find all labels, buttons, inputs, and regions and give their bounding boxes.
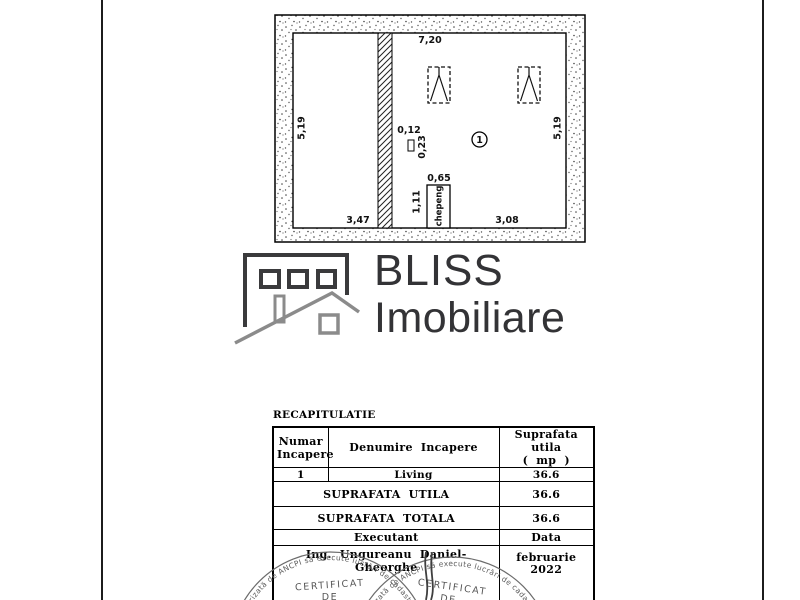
- scanned-document-page: 1 7,20 5,19 5,19 3,47 3,08 0,12 0,23 0,6…: [0, 0, 800, 600]
- cell-room-area: 36.6: [499, 468, 594, 482]
- dimension-left: 5,19: [297, 116, 308, 139]
- hatch-opening-label: chepeng: [435, 186, 445, 227]
- hatched-partition-wall: [378, 33, 392, 228]
- dimension-niche-depth: 0,23: [417, 135, 428, 158]
- floor-plan-drawing: 1 7,20 5,19 5,19 3,47 3,08 0,12 0,23 0,6…: [270, 10, 590, 246]
- cell-suprafata-totala-value: 36.6: [499, 507, 594, 530]
- logo-brand-subtitle: Imobiliare: [374, 293, 565, 343]
- certification-stamps: torizată de ANCPI să execute lucrări de …: [0, 540, 800, 600]
- recap-title: RECAPITULATIE: [273, 409, 376, 421]
- cell-suprafata-totala-label: SUPRAFATA TOTALA: [273, 507, 499, 530]
- table-row-suprafata-totala: SUPRAFATA TOTALA 36.6: [273, 507, 594, 530]
- cell-suprafata-utila-value: 36.6: [499, 482, 594, 507]
- dimension-hatch-depth: 1,11: [412, 190, 423, 213]
- logo-text: BLISS Imobiliare: [374, 249, 565, 343]
- page-border-left: [101, 0, 103, 600]
- house-icon: [233, 248, 367, 352]
- dimension-bottom-right: 3,08: [495, 215, 519, 226]
- page-border-right: [762, 0, 764, 600]
- cell-suprafata-utila-label: SUPRAFATA UTILA: [273, 482, 499, 507]
- room-number: 1: [476, 135, 483, 146]
- dimension-bottom-left: 3,47: [346, 215, 369, 226]
- dimension-top: 7,20: [418, 35, 442, 46]
- table-header-row: Numar Incapere Denumire Incapere Suprafa…: [273, 427, 594, 468]
- dimension-niche-width: 0,12: [397, 125, 420, 136]
- header-denumire-incapere: Denumire Incapere: [328, 427, 499, 468]
- logo-brand-name: BLISS: [374, 249, 565, 293]
- header-suprafata-utila: Suprafata utila ( mp ): [499, 427, 594, 468]
- niche-symbol: [408, 140, 414, 151]
- stamp-de-text: DE: [322, 592, 339, 600]
- dimension-right: 5,19: [553, 116, 564, 139]
- cell-room-name: Living: [328, 468, 499, 482]
- table-row-suprafata-utila: SUPRAFATA UTILA 36.6: [273, 482, 594, 507]
- table-row-living: 1 Living 36.6: [273, 468, 594, 482]
- cell-room-number: 1: [273, 468, 328, 482]
- stamp-de-text: DE: [439, 593, 457, 600]
- dimension-hatch-width: 0,65: [427, 173, 450, 184]
- header-numar-incapere: Numar Incapere: [273, 427, 328, 468]
